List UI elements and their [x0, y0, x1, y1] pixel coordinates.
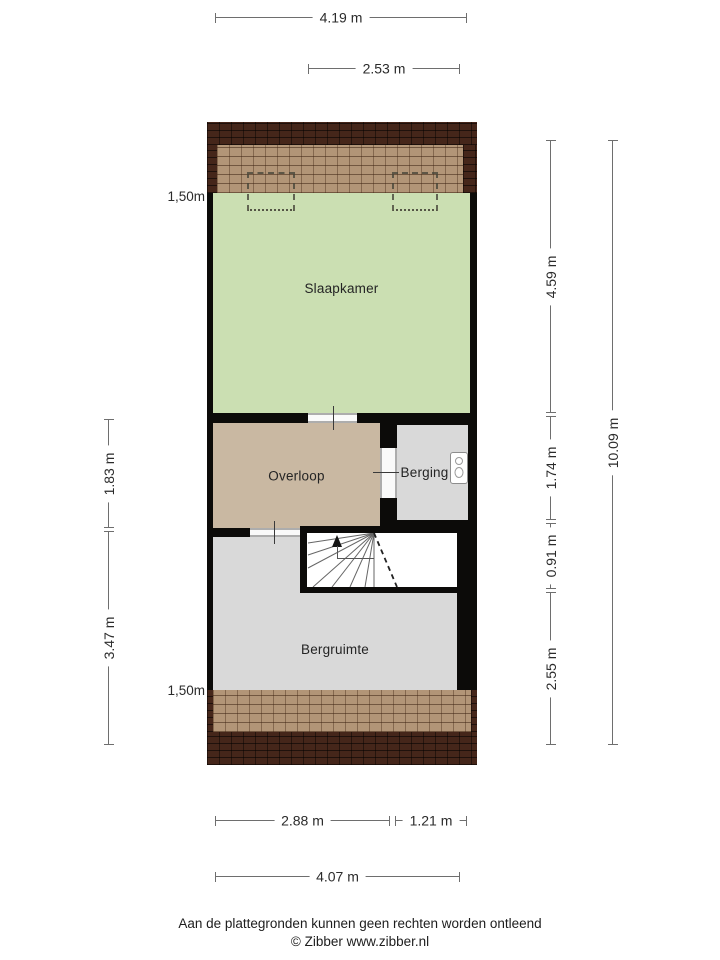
- roof-ridge-top: [207, 122, 477, 145]
- footer-disclaimer: Aan de plattegronden kunnen geen rechten…: [0, 916, 720, 931]
- dim-label: 2.55 m: [543, 640, 559, 697]
- roof-slope-bottom: [213, 690, 471, 732]
- floorplan: Slaapkamer Overloop Berging Bergruimte: [207, 122, 477, 765]
- dim-label: 1.74 m: [543, 440, 559, 497]
- room-label-slaapkamer: Slaapkamer: [213, 281, 470, 296]
- room-overloop: Overloop: [213, 423, 380, 528]
- stairs-walkline: [337, 558, 374, 559]
- boiler-icon-detail: [455, 457, 463, 465]
- dim-left-bergruimte-height: 3.47 m: [108, 531, 109, 745]
- room-slaapkamer: Slaapkamer: [213, 193, 470, 413]
- door-bergruimte-mark: [274, 521, 275, 544]
- headroom-mark-bottom-left: 1,50m: [167, 683, 205, 698]
- staircase: [307, 533, 457, 587]
- dim-label: 1.83 m: [101, 445, 117, 502]
- footer-copyright: © Zibber www.zibber.nl: [0, 934, 720, 949]
- dim-label: 4.07 m: [309, 868, 366, 884]
- headroom-mark-top-left: 1,50m: [167, 189, 205, 204]
- dim-right-total-height: 10.09 m: [612, 140, 613, 745]
- dim-bottom-right-width: 1.21 m: [395, 820, 467, 821]
- dim-bottom-total-width: 4.07 m: [215, 876, 460, 877]
- dim-label: 10.09 m: [605, 410, 621, 475]
- dim-right-stairs-height: 0.91 m: [550, 523, 551, 589]
- door-bergruimte: [250, 528, 300, 537]
- door-berging: [380, 448, 397, 498]
- boiler-icon-detail: [455, 467, 464, 478]
- dim-label: 2.53 m: [356, 60, 413, 76]
- dim-label: 1.21 m: [403, 812, 460, 828]
- roof-window-right: [392, 172, 438, 211]
- dim-right-bergruimte-height: 2.55 m: [550, 592, 551, 745]
- dim-label: 4.19 m: [313, 9, 370, 25]
- roof-edge-bottom-right: [471, 690, 477, 732]
- room-label-overloop: Overloop: [213, 468, 380, 483]
- dim-right-slaapkamer-height: 4.59 m: [550, 140, 551, 413]
- dim-top-partial-width: 2.53 m: [308, 68, 460, 69]
- door-berging-mark: [373, 472, 399, 473]
- door-slaapkamer-mark: [333, 406, 334, 430]
- dim-top-total-width: 4.19 m: [215, 17, 467, 18]
- dim-left-overloop-height: 1.83 m: [108, 419, 109, 528]
- stair-treads: [307, 533, 457, 587]
- roof-window-left: [247, 172, 295, 211]
- dim-label: 3.47 m: [101, 610, 117, 667]
- dim-label: 2.88 m: [274, 812, 331, 828]
- roof-edge-right: [463, 145, 477, 193]
- boiler-icon: [450, 452, 468, 484]
- dim-label: 4.59 m: [543, 248, 559, 305]
- room-label-bergruimte: Bergruimte: [213, 642, 457, 657]
- dim-bottom-left-width: 2.88 m: [215, 820, 390, 821]
- roof-ridge-bottom: [207, 732, 477, 765]
- roof-edge-left: [207, 145, 217, 193]
- dim-right-overloop-height: 1.74 m: [550, 416, 551, 520]
- dim-label: 0.91 m: [543, 528, 559, 585]
